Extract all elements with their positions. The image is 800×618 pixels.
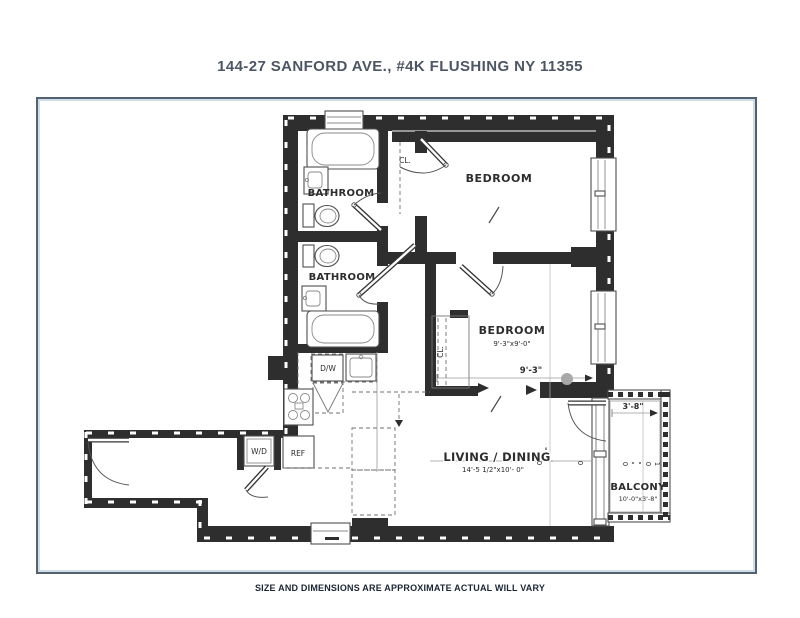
bedroom-middle-dimensions: 9'-3"x9'-0"	[493, 340, 530, 348]
bathroom-top-fixtures	[303, 129, 379, 227]
sink	[302, 286, 326, 311]
dishwasher-label: D/W	[320, 364, 336, 373]
disclaimer-text: SIZE AND DIMENSIONS ARE APPROXIMATE ACTU…	[0, 583, 800, 593]
living-dining-dimensions: 14'-5 1/2"x10'- 0"	[462, 466, 524, 474]
living-dining-label: LIVING / DINING	[443, 450, 550, 464]
bedroom-middle-window	[591, 291, 616, 364]
closet-bedroom-label: CL.	[436, 346, 445, 358]
rotated-mark-1: 0	[535, 461, 543, 465]
bedroom-width-dimension: 9'-3"	[520, 366, 542, 376]
washer-dryer-label: W/D	[251, 447, 267, 456]
rotated-mark-4: 0	[644, 462, 652, 466]
toilet	[303, 204, 339, 227]
washer-dryer-door	[246, 467, 268, 497]
refrigerator-label: REF	[291, 449, 305, 458]
kitchen-island	[352, 428, 395, 515]
closet-top-label: CL.	[399, 156, 411, 165]
bathroom-middle-label: BATHROOM	[309, 272, 376, 283]
camera-marker-dot	[561, 373, 573, 385]
rotated-mark-2: 0	[576, 461, 584, 465]
kitchen-sink	[346, 354, 376, 381]
fixture-labels: CL. CL. D/W REF W/D	[251, 156, 445, 458]
bedroom-top-label: BEDROOM	[466, 172, 533, 185]
toilet	[303, 245, 339, 267]
bathroom-top-window	[325, 111, 363, 130]
corner-cabinet	[313, 383, 343, 413]
balcony-depth-dimension: 3'-8"	[622, 402, 643, 411]
stove	[284, 389, 313, 425]
floorplan-drawing: BATHROOM BATHROOM BEDROOM BEDROOM 9'-3"x…	[0, 0, 800, 618]
balcony-glass-wall	[592, 398, 609, 526]
bedroom-top-window	[591, 158, 616, 231]
entry-door	[88, 440, 129, 485]
bedroom-middle-door	[461, 266, 503, 296]
bedroom-middle-label: BEDROOM	[479, 324, 546, 337]
bathtub	[307, 129, 379, 169]
bathroom-middle-fixtures	[302, 245, 379, 347]
page: 144-27 SANFORD AVE., #4K FLUSHING NY 113…	[0, 0, 800, 618]
bottom-wall-window	[311, 523, 350, 544]
balcony-label: BALCONY	[610, 482, 666, 493]
bathroom-top-label: BATHROOM	[308, 188, 375, 199]
rotated-mark-3: 0	[621, 462, 629, 466]
bathtub	[307, 311, 379, 347]
rotated-mark-5: 1	[653, 462, 661, 466]
living-dining-mark: °	[544, 447, 548, 455]
balcony-dimensions: 10'-0"x3'-8"	[619, 495, 658, 503]
kitchen	[283, 352, 430, 515]
